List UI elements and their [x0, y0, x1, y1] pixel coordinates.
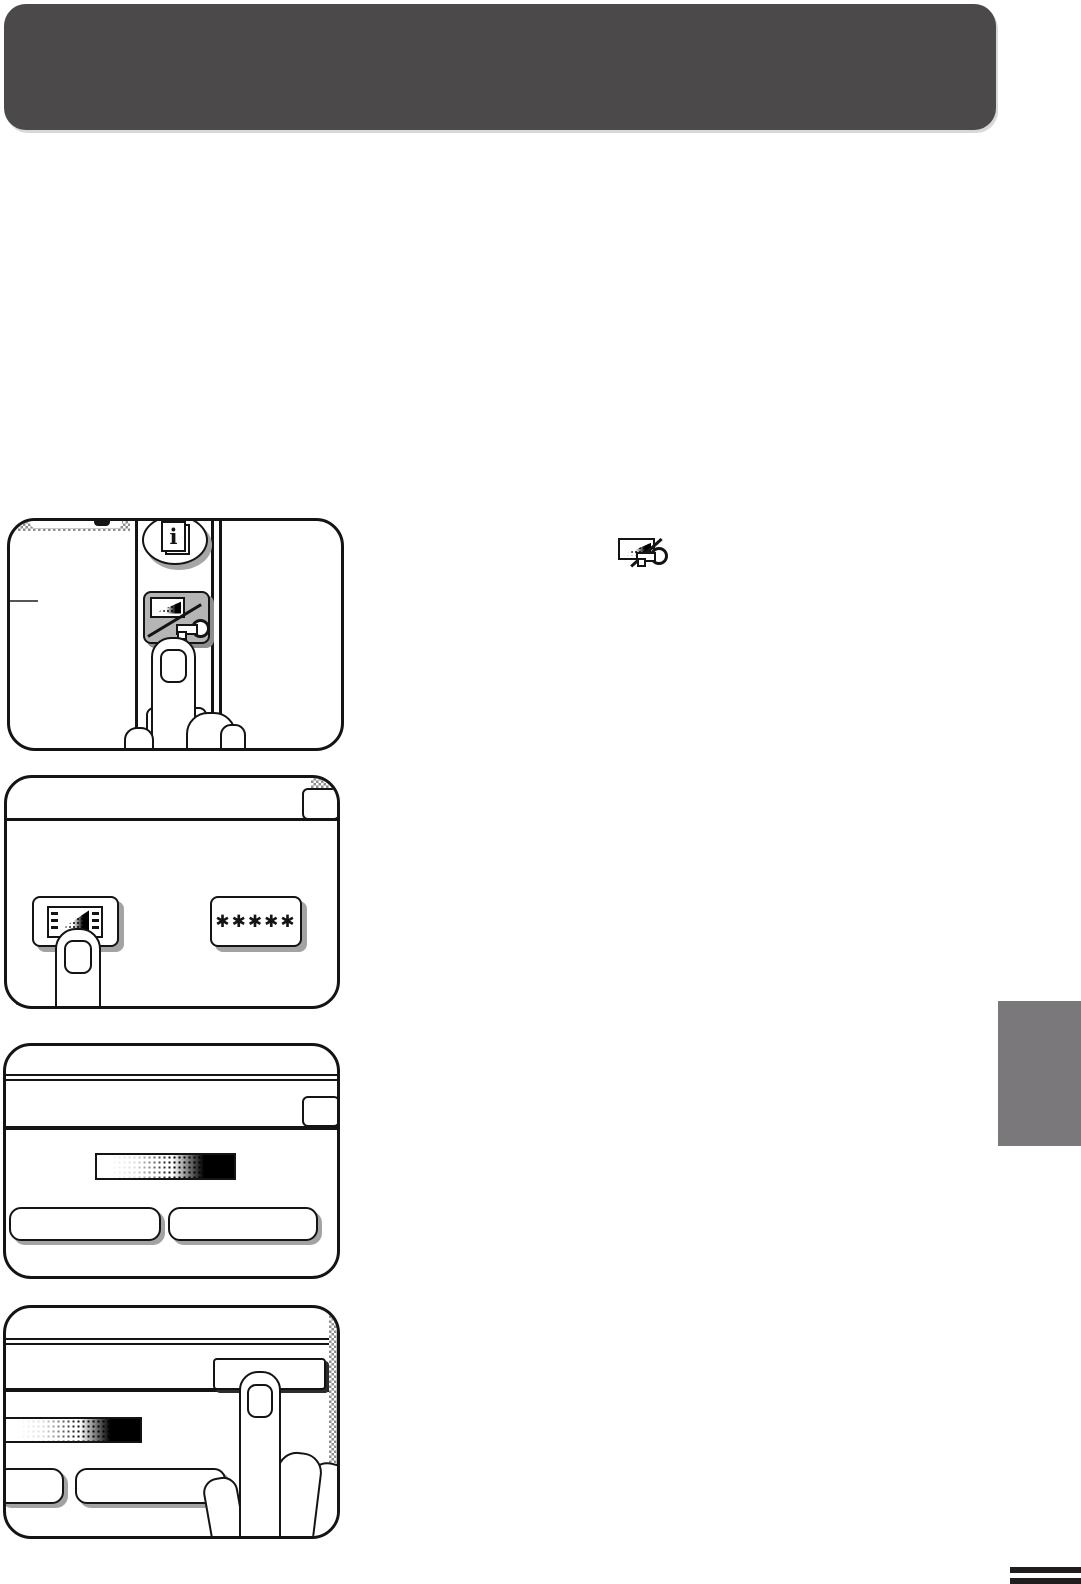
account-number-display: ✱✱✱✱✱	[210, 896, 302, 947]
screen-thin-line	[6, 1338, 329, 1340]
key-tooth	[637, 558, 646, 567]
fingernail	[160, 649, 187, 683]
screen-header-line	[6, 1126, 337, 1130]
screen-key-left	[9, 1207, 161, 1241]
chapter-side-tab	[998, 1001, 1081, 1146]
exposure-gradient-bar	[4, 1417, 142, 1443]
corner-hatch	[311, 778, 337, 788]
footer-mark	[1010, 1578, 1081, 1584]
exposure-gradient-bar	[95, 1153, 236, 1180]
screen-thin-line	[6, 1079, 337, 1081]
step3-illustration	[3, 1043, 340, 1279]
information-button-icon: i	[142, 518, 208, 565]
screen-thin-line	[6, 1074, 337, 1076]
callout-line	[10, 600, 38, 602]
footer-mark	[1010, 1567, 1081, 1573]
screen-thin-line	[6, 1343, 329, 1345]
chapter-banner	[4, 4, 996, 130]
small-fingertip-right	[220, 724, 246, 751]
screen-key-left	[3, 1468, 64, 1504]
screen-header-line	[7, 818, 337, 821]
account-number-asterisks: ✱✱✱✱✱	[212, 898, 300, 945]
screen-corner-key	[302, 1096, 340, 1127]
step2-illustration: ✱✱✱✱✱	[4, 775, 340, 1009]
small-fingertip-left	[124, 727, 154, 751]
cover-handle	[94, 521, 110, 526]
fingernail	[247, 1384, 273, 1418]
step1-illustration: i	[7, 518, 344, 751]
panel-strip-line	[135, 521, 138, 748]
screen-corner-key	[302, 788, 340, 820]
step4-illustration	[3, 1305, 340, 1539]
info-glyph: i	[161, 521, 186, 552]
manual-page: i	[0, 0, 1081, 1584]
screen-key-right	[168, 1207, 318, 1241]
fingernail	[64, 940, 92, 974]
exposure-key-icon	[612, 525, 670, 577]
